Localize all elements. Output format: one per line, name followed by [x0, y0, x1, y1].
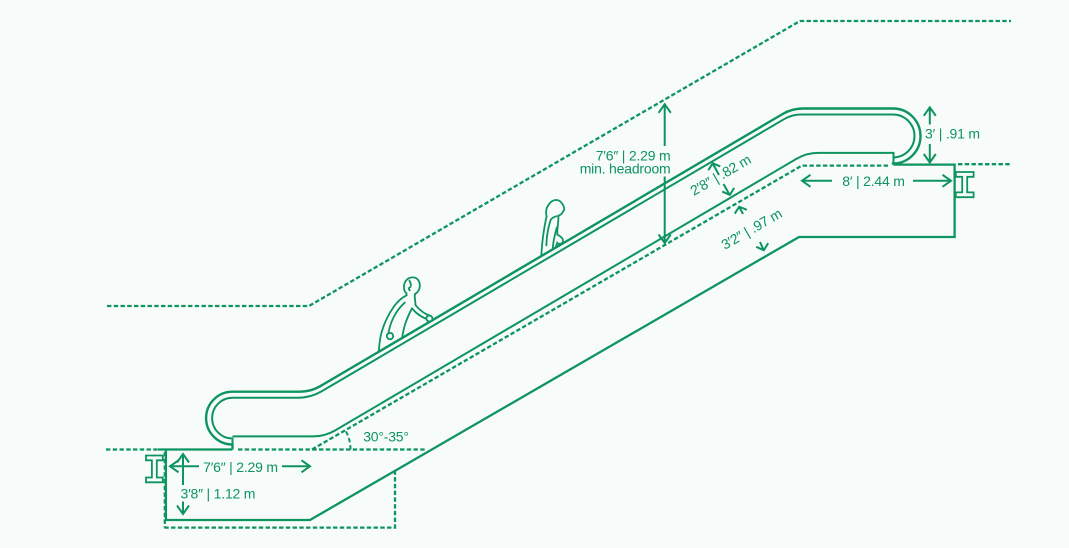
svg-text:8′ | 2.44 m: 8′ | 2.44 m: [842, 173, 904, 189]
svg-text:3′8″ | 1.12 m: 3′8″ | 1.12 m: [181, 485, 256, 501]
svg-text:7′6″ | 2.29 m: 7′6″ | 2.29 m: [203, 459, 278, 475]
svg-text:3′ | .91 m: 3′ | .91 m: [925, 126, 980, 142]
svg-text:min. headroom: min. headroom: [580, 160, 671, 176]
svg-text:30°-35°: 30°-35°: [363, 429, 409, 445]
